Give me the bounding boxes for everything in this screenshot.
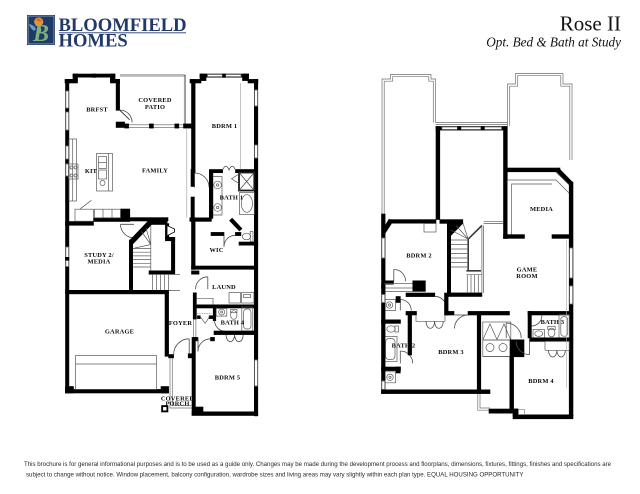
svg-text:BDRM 3: BDRM 3 [438, 349, 464, 356]
svg-text:WIC: WIC [209, 247, 223, 254]
svg-text:BATH 4: BATH 4 [221, 320, 245, 327]
svg-text:MEDIA: MEDIA [87, 259, 110, 266]
svg-text:PATIO: PATIO [145, 104, 165, 111]
svg-text:Rose II: Rose II [560, 12, 621, 36]
svg-text:LAUND: LAUND [212, 284, 236, 291]
svg-text:subject to change without noti: subject to change without notice. Window… [26, 472, 523, 479]
svg-text:GARAGE: GARAGE [105, 329, 134, 336]
svg-text:KIT: KIT [85, 168, 98, 175]
svg-text:This brochure is for general i: This brochure is for general information… [24, 461, 612, 468]
svg-text:Opt. Bed & Bath at Study: Opt. Bed & Bath at Study [486, 35, 621, 50]
svg-text:BRFST: BRFST [86, 107, 108, 114]
svg-text:BDRM 4: BDRM 4 [528, 378, 554, 385]
svg-text:FAMILY: FAMILY [142, 168, 168, 175]
svg-text:ROOM: ROOM [516, 273, 537, 280]
svg-text:BDRM 5: BDRM 5 [215, 375, 241, 382]
svg-text:FOYER: FOYER [169, 320, 193, 327]
svg-text:BATH 1: BATH 1 [220, 195, 244, 202]
svg-text:BDRM 1: BDRM 1 [212, 123, 238, 130]
svg-text:HOMES: HOMES [59, 31, 128, 52]
svg-text:PORCH: PORCH [165, 401, 189, 408]
svg-text:COVERED: COVERED [138, 97, 172, 104]
svg-text:BATH 2: BATH 2 [392, 343, 416, 350]
svg-text:BDRM 2: BDRM 2 [406, 253, 432, 260]
svg-text:BATH 3: BATH 3 [541, 319, 565, 326]
svg-text:MEDIA: MEDIA [530, 206, 553, 213]
